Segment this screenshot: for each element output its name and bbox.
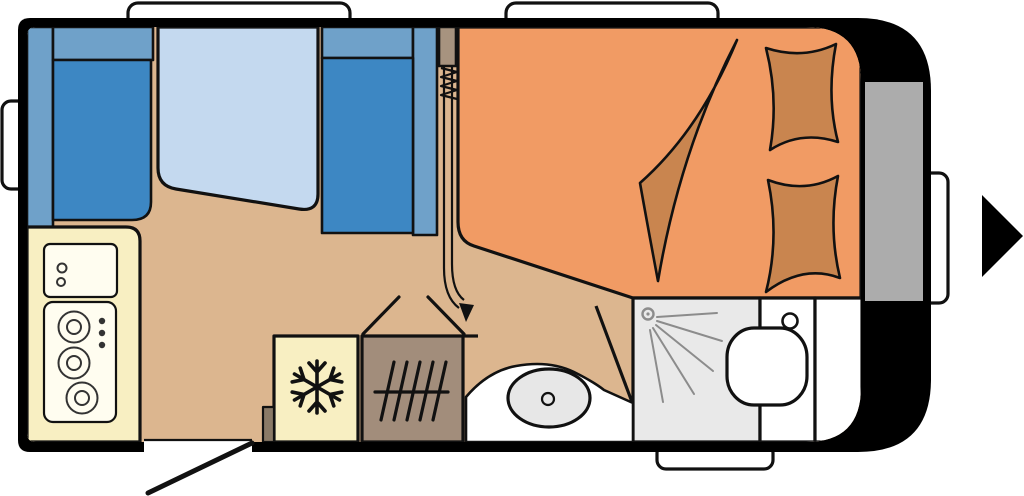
front-seat-side-backrest [27, 27, 53, 228]
rear-seat-side-backrest [413, 27, 437, 235]
stove-knobs [99, 318, 105, 348]
pillow-left [766, 44, 838, 150]
front-dinette [27, 27, 153, 228]
caravan-floorplan [0, 0, 1024, 496]
toilet [727, 328, 807, 405]
rear-seat-backrest [322, 27, 413, 58]
partition [439, 27, 456, 66]
floorplan-canvas [0, 0, 1024, 496]
pillow-right [766, 176, 840, 292]
shower-head-dot [646, 312, 649, 315]
toilet-flush-button [783, 314, 798, 329]
rear-dinette-seat [322, 58, 413, 233]
rear-dinette [322, 27, 437, 235]
entry-step [263, 407, 274, 442]
kitchen [27, 227, 140, 442]
fridge [274, 336, 358, 442]
front-dinette-seat [53, 60, 151, 220]
washbasin [508, 369, 590, 427]
dinette-table [158, 27, 318, 209]
front-seat-backrest [53, 27, 153, 60]
sink-unit [44, 244, 117, 297]
exterior-locker [865, 82, 923, 301]
